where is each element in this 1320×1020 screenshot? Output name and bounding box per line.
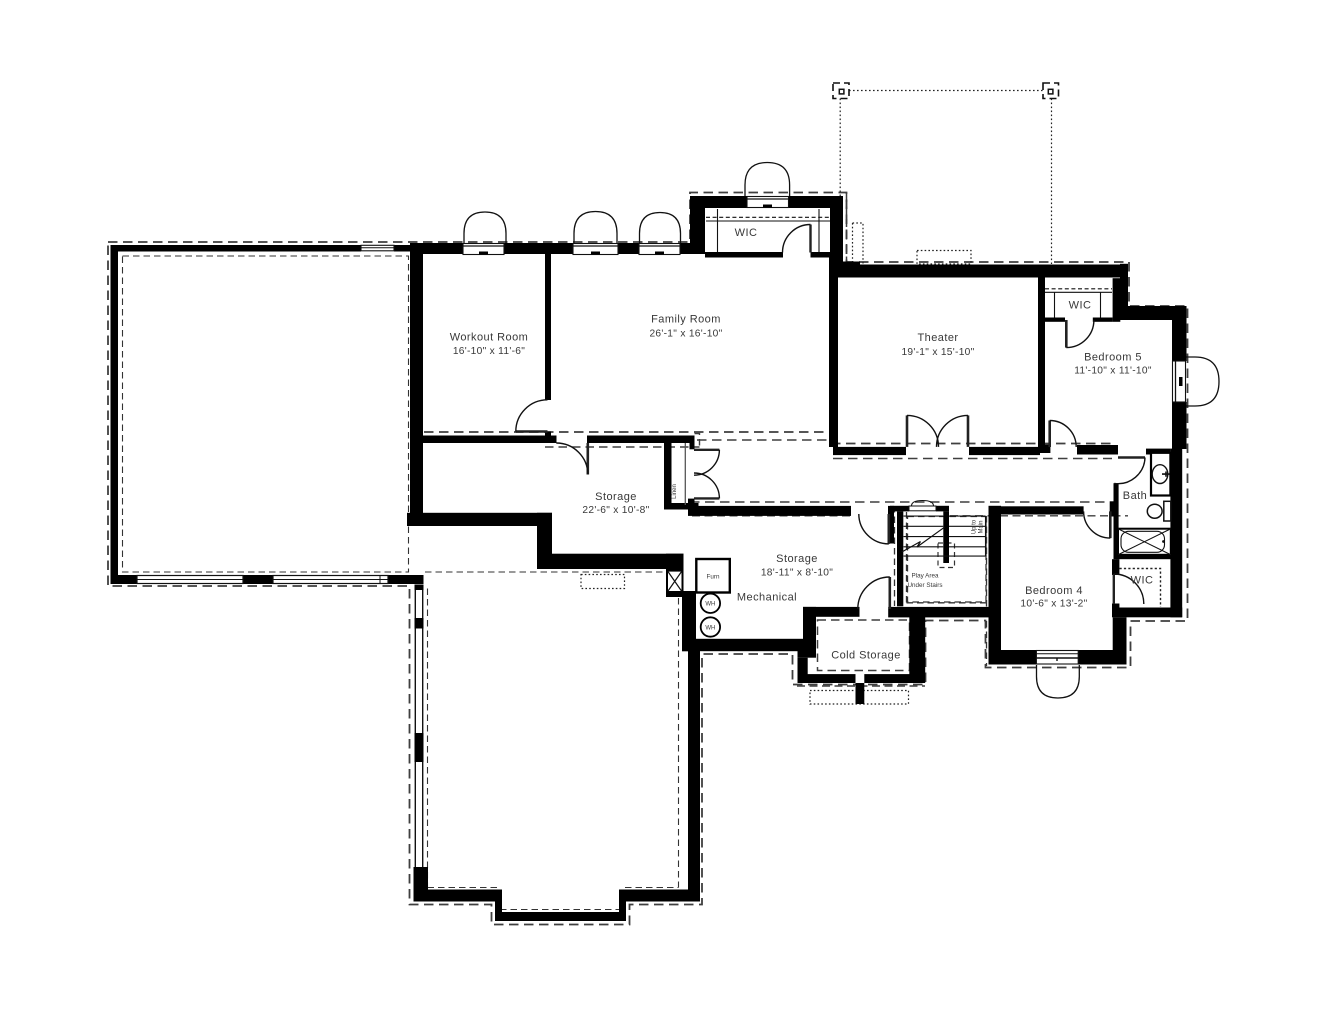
svg-text:Family Room: Family Room [651,314,721,326]
svg-text:Cold Storage: Cold Storage [831,650,901,662]
svg-text:WIC: WIC [1069,300,1092,312]
svg-text:Mechanical: Mechanical [737,592,797,604]
svg-text:10'-6" x 13'-2": 10'-6" x 13'-2" [1020,599,1087,610]
svg-text:Bath: Bath [1123,490,1147,502]
svg-text:Play Area: Play Area [912,573,939,580]
svg-text:26'-1" x 16'-10": 26'-1" x 16'-10" [649,329,722,340]
svg-text:Main: Main [979,520,985,533]
svg-text:Storage: Storage [595,491,637,503]
svg-text:Bedroom 5: Bedroom 5 [1084,352,1142,364]
svg-text:16'-10" x 11'-6": 16'-10" x 11'-6" [453,346,525,357]
svg-text:WIC: WIC [735,227,758,239]
svg-text:11'-10" x 11'-10": 11'-10" x 11'-10" [1074,366,1152,377]
svg-text:Up to: Up to [972,519,978,534]
svg-text:Theater: Theater [917,332,958,344]
svg-text:18'-11" x 8'-10": 18'-11" x 8'-10" [761,568,833,579]
svg-text:WH: WH [705,602,715,608]
svg-text:22'-6" x 10'-8": 22'-6" x 10'-8" [582,505,649,516]
svg-text:Under Stairs: Under Stairs [908,582,943,589]
svg-text:19'-1" x 15'-10": 19'-1" x 15'-10" [901,347,974,358]
svg-text:Workout Room: Workout Room [450,332,529,344]
svg-text:WIC: WIC [1131,575,1154,587]
svg-text:Furn: Furn [707,574,720,581]
svg-text:WH: WH [705,625,715,631]
svg-text:Linen: Linen [672,484,678,499]
svg-text:Storage: Storage [776,553,818,565]
svg-text:Bedroom 4: Bedroom 4 [1025,585,1083,597]
